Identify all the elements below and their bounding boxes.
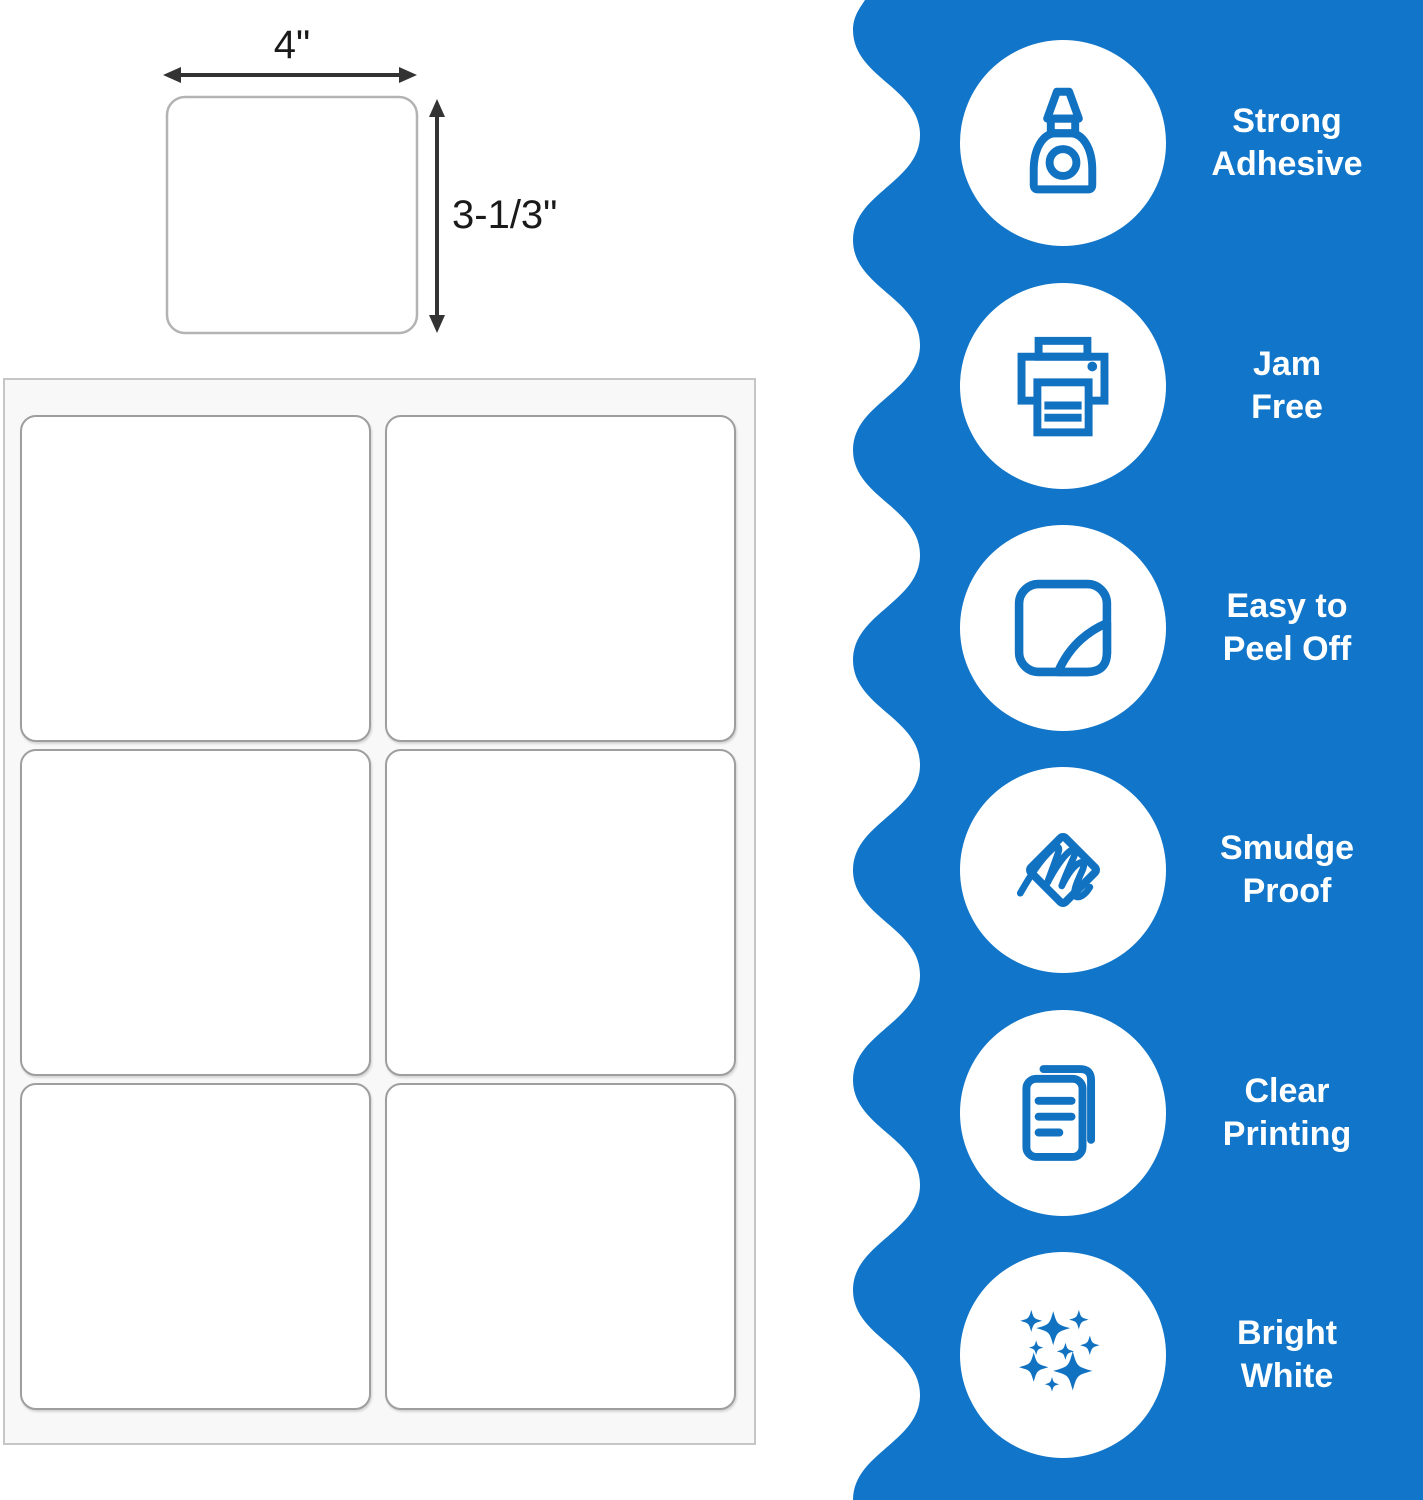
- feature-label: Easy to Peel Off: [1162, 585, 1412, 671]
- feature-line-2: White: [1162, 1355, 1412, 1398]
- feature-icon-circle: [960, 767, 1166, 973]
- sparkles-icon: [1002, 1294, 1124, 1416]
- feature-line-2: Printing: [1162, 1113, 1412, 1156]
- feature-line-2: Peel Off: [1162, 628, 1412, 671]
- label-cell: [385, 1083, 736, 1410]
- feature-icon-circle: [960, 283, 1166, 489]
- label-cell: [20, 1083, 371, 1410]
- product-infographic: 4" 3-1/3" St: [0, 0, 1423, 1500]
- feature-icon-circle: [960, 525, 1166, 731]
- peel-off-sticker-icon: [1002, 567, 1124, 689]
- height-dimension-label: 3-1/3": [452, 193, 557, 237]
- width-arrow: [163, 67, 417, 83]
- feature-line-1: Clear: [1162, 1070, 1412, 1113]
- feature-label: Bright White: [1162, 1312, 1412, 1398]
- feature-line-2: Adhesive: [1162, 143, 1412, 186]
- smudge-wipe-hand-icon: [1002, 809, 1124, 931]
- printed-documents-icon: [1002, 1052, 1124, 1174]
- feature-label: Clear Printing: [1162, 1070, 1412, 1156]
- label-cell: [20, 749, 371, 1076]
- feature-line-1: Easy to: [1162, 585, 1412, 628]
- label-preview-box: [167, 97, 417, 333]
- feature-line-1: Jam: [1162, 343, 1412, 386]
- printer-icon: [1002, 325, 1124, 447]
- feature-label: Smudge Proof: [1162, 827, 1412, 913]
- label-cell: [20, 415, 371, 742]
- label-cell: [385, 415, 736, 742]
- height-arrow: [429, 99, 445, 333]
- feature-icon-circle: [960, 40, 1166, 246]
- feature-icon-circle: [960, 1010, 1166, 1216]
- feature-line-2: Proof: [1162, 870, 1412, 913]
- feature-line-2: Free: [1162, 386, 1412, 429]
- dimension-diagram: 4" 3-1/3": [0, 0, 660, 370]
- feature-label: Jam Free: [1162, 343, 1412, 429]
- label-sheet: [3, 378, 756, 1445]
- feature-line-1: Bright: [1162, 1312, 1412, 1355]
- label-cell: [385, 749, 736, 1076]
- feature-label: Strong Adhesive: [1162, 100, 1412, 186]
- width-dimension-label: 4": [274, 23, 310, 67]
- glue-bottle-icon: [1002, 82, 1124, 204]
- feature-line-1: Strong: [1162, 100, 1412, 143]
- wave-edge: [853, 0, 1423, 1500]
- feature-icon-circle: [960, 1252, 1166, 1458]
- feature-line-1: Smudge: [1162, 827, 1412, 870]
